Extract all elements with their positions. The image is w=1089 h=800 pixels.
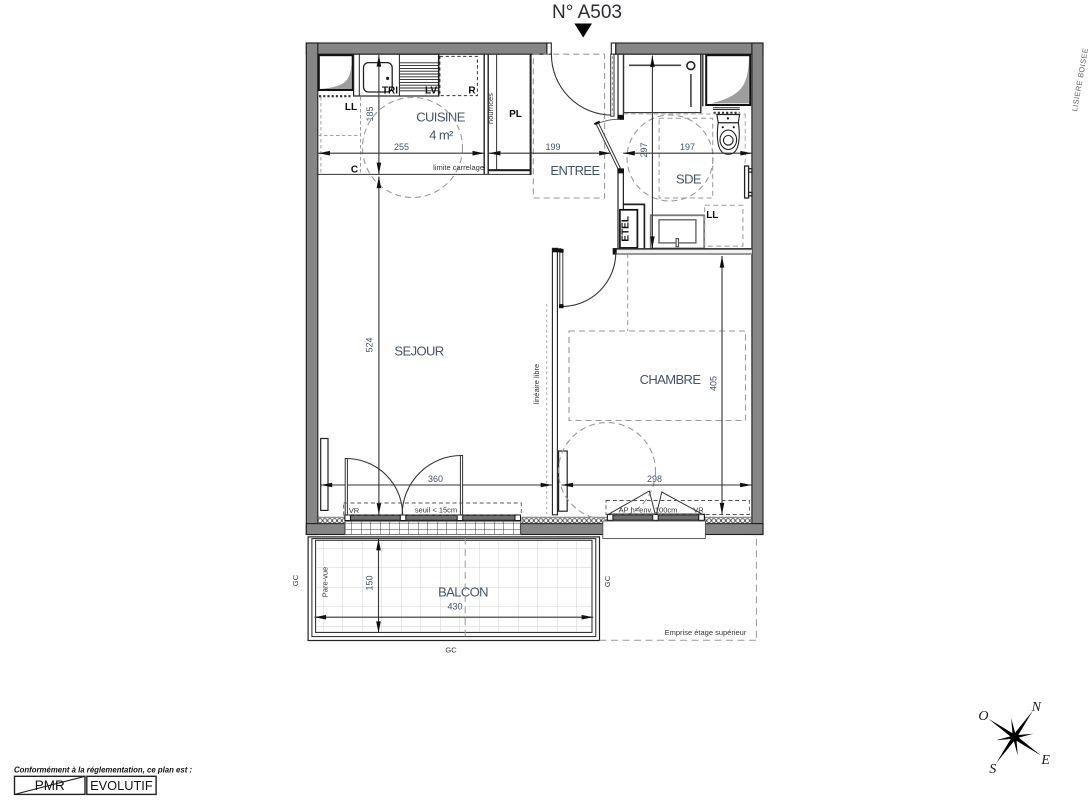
svg-text:nourrices: nourrices: [486, 93, 495, 124]
svg-text:GC: GC: [445, 646, 457, 655]
svg-text:185: 185: [365, 106, 375, 121]
svg-text:524: 524: [365, 337, 375, 352]
svg-text:LISIERE BOISEE: LISIERE BOISEE: [1070, 47, 1089, 112]
svg-text:4 m²: 4 m²: [429, 128, 454, 143]
svg-text:197: 197: [680, 142, 695, 152]
svg-text:430: 430: [447, 602, 462, 612]
svg-text:S: S: [989, 762, 996, 777]
svg-text:AP h=env. 100cm: AP h=env. 100cm: [619, 505, 678, 514]
svg-text:255: 255: [394, 142, 409, 152]
svg-text:297: 297: [639, 142, 649, 157]
svg-text:BALCON: BALCON: [438, 585, 488, 600]
svg-text:GC: GC: [603, 575, 612, 587]
svg-text:O: O: [978, 709, 988, 724]
svg-text:405: 405: [709, 376, 719, 391]
svg-text:Emprise étage supérieur: Emprise étage supérieur: [665, 628, 747, 637]
svg-text:PMR: PMR: [35, 778, 65, 793]
svg-text:SEJOUR: SEJOUR: [394, 344, 443, 359]
svg-text:EVOLUTIF: EVOLUTIF: [90, 778, 153, 793]
svg-text:ETEL: ETEL: [621, 216, 632, 242]
svg-text:N° A503: N° A503: [552, 2, 622, 23]
svg-text:199: 199: [545, 142, 560, 152]
svg-text:LL: LL: [345, 102, 357, 113]
svg-text:298: 298: [647, 474, 662, 484]
svg-text:C: C: [351, 165, 358, 176]
svg-text:150: 150: [365, 575, 375, 590]
svg-text:ENTREE: ENTREE: [550, 163, 600, 178]
svg-text:LV: LV: [425, 85, 437, 96]
svg-text:Conformément à la réglementati: Conformément à la réglementation, ce pla…: [14, 766, 192, 775]
svg-text:Pare-vue: Pare-vue: [321, 567, 330, 597]
svg-text:seuil < 15cm: seuil < 15cm: [415, 505, 457, 514]
svg-text:SDE: SDE: [676, 172, 702, 187]
svg-text:linéaire libre: linéaire libre: [532, 364, 541, 404]
svg-text:N: N: [1031, 700, 1042, 715]
svg-text:CUISINE: CUISINE: [416, 110, 465, 125]
svg-text:R: R: [468, 85, 476, 96]
svg-text:360: 360: [428, 474, 443, 484]
svg-text:CHAMBRE: CHAMBRE: [640, 372, 702, 387]
svg-text:LL: LL: [706, 210, 718, 221]
svg-text:E: E: [1040, 753, 1050, 768]
svg-text:TRI: TRI: [382, 85, 398, 96]
svg-text:PL: PL: [509, 109, 522, 120]
svg-text:limite carrelage: limite carrelage: [433, 163, 484, 172]
svg-text:GC: GC: [291, 574, 300, 586]
svg-text:VR: VR: [693, 505, 704, 514]
svg-text:VR: VR: [349, 506, 360, 515]
